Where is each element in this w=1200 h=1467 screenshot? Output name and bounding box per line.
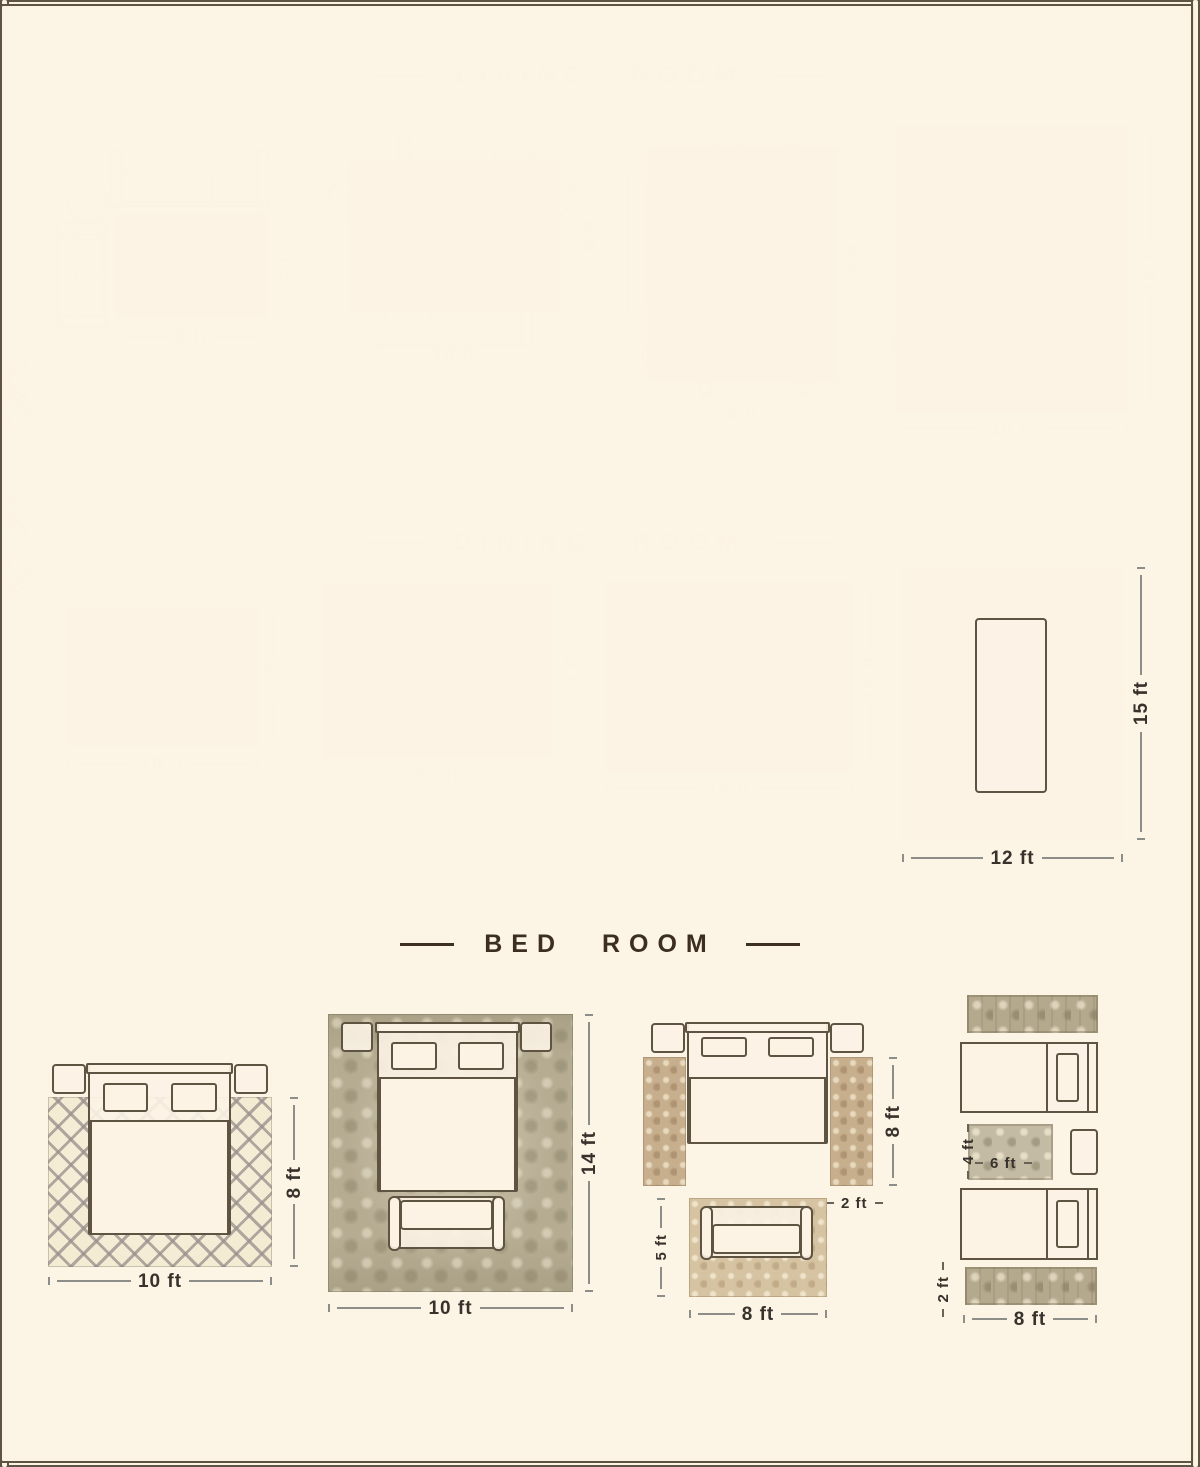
bed-headboard <box>86 1063 233 1074</box>
section-title-text: BED ROOM <box>484 930 716 959</box>
bed <box>377 1022 518 1192</box>
dimension-line <box>698 1313 735 1315</box>
dimension-tick <box>290 1097 298 1099</box>
dimension-dash <box>826 1202 834 1204</box>
dimension-line <box>892 1065 894 1099</box>
runner-rug-8x2 <box>967 995 1098 1033</box>
sofa-cushion <box>400 1200 493 1230</box>
title-dash <box>746 943 800 946</box>
dimension-dash <box>942 1262 944 1270</box>
dimension-line <box>660 1267 662 1289</box>
bed-headboard <box>685 1022 830 1033</box>
dimension-dash <box>875 1202 883 1204</box>
dimension-tick <box>328 1304 330 1312</box>
bed-headboard <box>1087 1188 1098 1260</box>
bed-pillow <box>103 1083 149 1112</box>
dimension-line <box>189 1280 263 1282</box>
runner-rug-2x8 <box>830 1057 873 1186</box>
dimension-label: 8 ft <box>1014 1310 1047 1329</box>
between-rug-width-dimension: 6 ft <box>975 1152 1047 1174</box>
dimension-line <box>337 1307 421 1309</box>
dimension-line <box>892 1144 894 1178</box>
dimension-dash <box>967 1124 969 1132</box>
bed-pillow <box>701 1037 746 1057</box>
twin-bed <box>960 1188 1098 1260</box>
bed-blanket <box>960 1188 1048 1260</box>
foot-rug-height-dimension: 5 ft <box>650 1198 672 1297</box>
sofa-arm <box>492 1196 505 1251</box>
runner-height-dimension: 8 ft <box>882 1057 904 1186</box>
dimension-label: 8 ft <box>884 1105 903 1138</box>
dimension-label: 5 ft <box>654 1234 669 1261</box>
bed-blanket <box>90 1120 229 1235</box>
bed-blanket <box>960 1042 1048 1113</box>
bed-pillow <box>768 1037 813 1057</box>
dimension-tick <box>657 1295 665 1297</box>
dimension-line <box>660 1206 662 1228</box>
sofa-cushion-zone <box>712 1224 801 1254</box>
bed-blanket <box>689 1077 826 1144</box>
runner-width-dimension: 2 ft <box>826 1192 882 1214</box>
nightstand <box>341 1022 373 1052</box>
dimension-label: 6 ft <box>990 1156 1017 1171</box>
width-dimension: 10 ft <box>48 1270 272 1292</box>
dimension-tick <box>963 1315 965 1323</box>
dimension-line <box>480 1307 564 1309</box>
bed-room-section: BED ROOM 10 ft 8 ft 10 ft <box>0 0 1200 1467</box>
dimension-dash <box>967 1171 969 1179</box>
title-dash <box>400 943 454 946</box>
runner-rug-8x2 <box>965 1267 1097 1305</box>
dimension-line <box>293 1105 295 1160</box>
dimension-tick <box>889 1057 897 1059</box>
width-dimension: 10 ft <box>328 1297 573 1319</box>
dimension-tick <box>290 1265 298 1267</box>
dimension-dash <box>942 1309 944 1317</box>
dimension-tick <box>585 1014 593 1016</box>
nightstand <box>234 1064 268 1094</box>
dimension-line <box>781 1313 818 1315</box>
bed-blanket <box>379 1077 516 1192</box>
bed-headboard <box>1087 1042 1098 1113</box>
dimension-tick <box>1095 1315 1097 1323</box>
dimension-label: 8 ft <box>285 1166 304 1199</box>
nightstand <box>52 1064 86 1094</box>
dimension-tick <box>270 1277 272 1285</box>
height-dimension: 8 ft <box>283 1097 305 1267</box>
runner-width-dimension: 2 ft <box>932 1262 954 1310</box>
dimension-line <box>972 1318 1007 1320</box>
rug-size-guide-poster: LIVING ROOM 8 ft 5 ft 10 ft <box>0 0 1200 1467</box>
dimension-label: 4 ft <box>961 1138 976 1165</box>
dimension-label: 2 ft <box>841 1196 868 1211</box>
bench-loveseat <box>388 1196 505 1249</box>
dimension-line <box>588 1022 590 1125</box>
dimension-tick <box>48 1277 50 1285</box>
dimension-line <box>588 1181 590 1284</box>
dimension-tick <box>585 1290 593 1292</box>
bed <box>687 1022 828 1144</box>
dimension-line <box>293 1204 295 1259</box>
bed-pillow <box>1056 1053 1079 1101</box>
dimension-dash <box>1024 1162 1032 1164</box>
dimension-label: 2 ft <box>936 1276 951 1303</box>
dimension-label: 10 ft <box>428 1299 472 1318</box>
bed-headboard <box>375 1022 520 1033</box>
dimension-tick <box>689 1310 691 1318</box>
dimension-tick <box>657 1198 665 1200</box>
bed-pillow <box>391 1042 436 1070</box>
runner-rug-2x8 <box>643 1057 686 1186</box>
bed-pillow <box>1056 1200 1079 1249</box>
section-title-bed-room: BED ROOM <box>0 930 1200 959</box>
twin-bed <box>960 1042 1098 1113</box>
dimension-tick <box>825 1310 827 1318</box>
dimension-label: 10 ft <box>138 1272 182 1291</box>
bed-pillow <box>458 1042 503 1070</box>
dimension-tick <box>571 1304 573 1312</box>
height-dimension: 14 ft <box>578 1014 600 1292</box>
runner-length-dimension: 8 ft <box>963 1308 1097 1330</box>
dimension-line <box>1053 1318 1088 1320</box>
sofa-arm <box>800 1206 813 1260</box>
bench-loveseat <box>700 1206 813 1258</box>
nightstand <box>1070 1129 1098 1175</box>
foot-rug-width-dimension: 8 ft <box>689 1303 827 1325</box>
bed <box>88 1063 231 1235</box>
nightstand <box>651 1023 685 1053</box>
dimension-tick <box>889 1184 897 1186</box>
dimension-label: 8 ft <box>742 1305 775 1324</box>
dimension-label: 14 ft <box>580 1131 599 1175</box>
nightstand <box>830 1023 864 1053</box>
nightstand <box>520 1022 552 1052</box>
sofa-cushion <box>712 1224 801 1254</box>
dimension-dash <box>975 1162 983 1164</box>
dimension-line <box>57 1280 131 1282</box>
sofa-cushion-zone <box>400 1200 493 1230</box>
bed-pillow <box>171 1083 217 1112</box>
